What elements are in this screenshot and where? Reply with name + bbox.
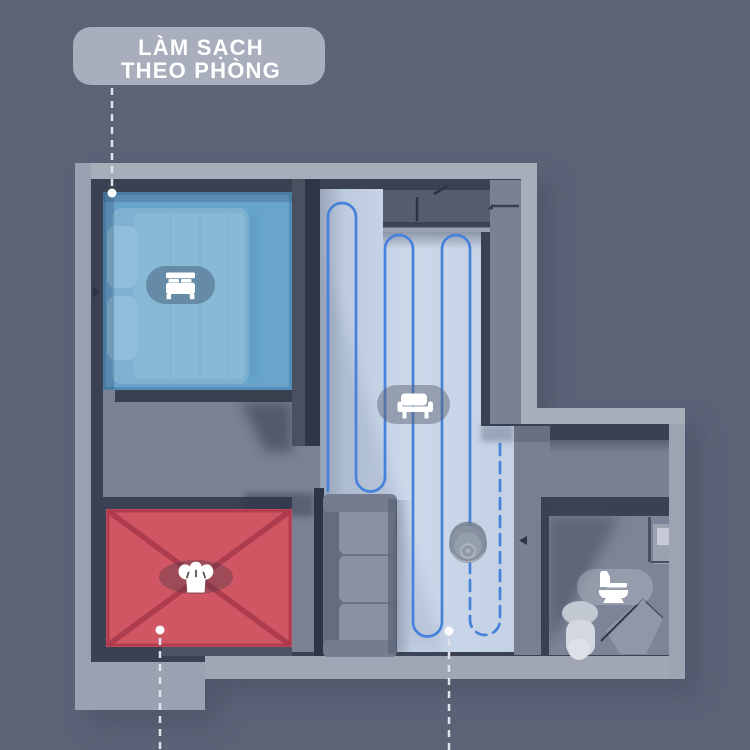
svg-text:LÀM SẠCH: LÀM SẠCH [138, 35, 264, 60]
svg-text:THEO PHÒNG: THEO PHÒNG [121, 58, 281, 83]
